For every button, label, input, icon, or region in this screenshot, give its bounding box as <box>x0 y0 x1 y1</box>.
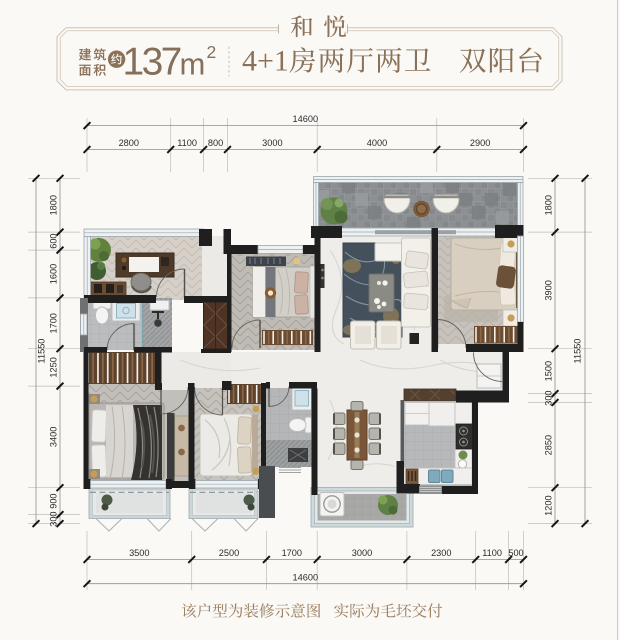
svg-text:800: 800 <box>208 138 223 148</box>
svg-text:1800: 1800 <box>49 195 59 215</box>
svg-text:3400: 3400 <box>49 427 59 447</box>
svg-text:3900: 3900 <box>544 280 554 300</box>
svg-text:2: 2 <box>207 42 217 62</box>
svg-text:2900: 2900 <box>470 138 490 148</box>
svg-text:2500: 2500 <box>219 548 239 558</box>
svg-text:1250: 1250 <box>49 357 59 377</box>
svg-text:4000: 4000 <box>367 138 387 148</box>
svg-text:3500: 3500 <box>129 548 149 558</box>
svg-text:14600: 14600 <box>293 114 319 124</box>
svg-text:600: 600 <box>49 233 59 248</box>
svg-text:1100: 1100 <box>482 548 502 558</box>
svg-text:11550: 11550 <box>37 339 47 364</box>
svg-text:2800: 2800 <box>119 138 139 148</box>
svg-text:1600: 1600 <box>49 264 59 284</box>
svg-text:1200: 1200 <box>544 495 554 515</box>
svg-text:300: 300 <box>49 511 59 526</box>
svg-text:1500: 1500 <box>544 361 554 381</box>
svg-text:1800: 1800 <box>544 195 554 215</box>
svg-text:500: 500 <box>508 548 523 558</box>
svg-text:4+1: 4+1 <box>242 45 289 78</box>
svg-text:1100: 1100 <box>177 138 197 148</box>
svg-text:1700: 1700 <box>282 548 302 558</box>
svg-text:900: 900 <box>49 493 59 508</box>
svg-text:300: 300 <box>544 390 554 405</box>
svg-text:m: m <box>180 47 206 82</box>
svg-text:137: 137 <box>123 41 181 84</box>
svg-text:2300: 2300 <box>431 548 451 558</box>
svg-text:2850: 2850 <box>544 435 554 455</box>
svg-text:3000: 3000 <box>352 548 372 558</box>
svg-text:11550: 11550 <box>573 339 583 364</box>
svg-text:14600: 14600 <box>293 572 319 582</box>
svg-text:3000: 3000 <box>262 138 282 148</box>
svg-text:1700: 1700 <box>49 313 59 333</box>
